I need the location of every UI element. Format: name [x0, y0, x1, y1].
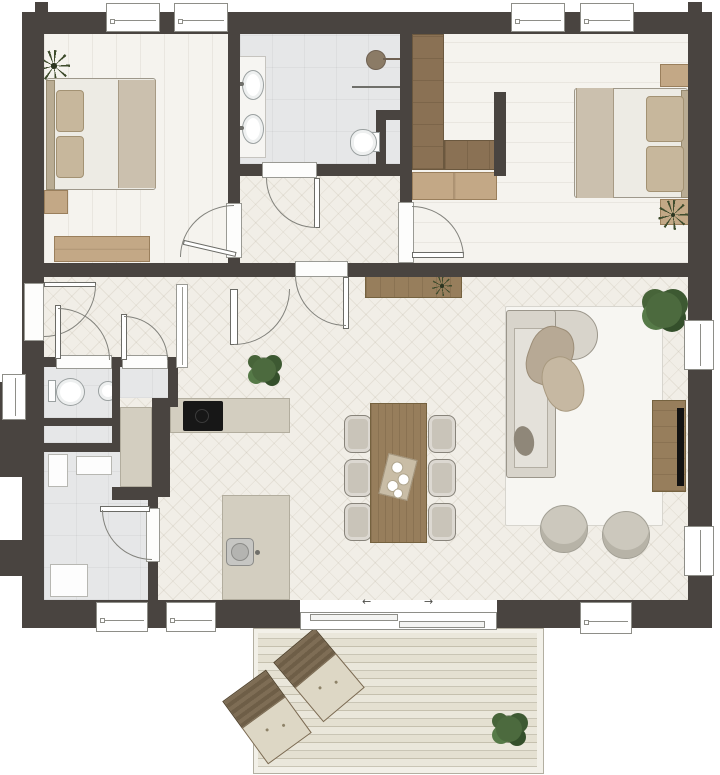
shower-head-icon	[366, 50, 386, 70]
wall-niche-bottom	[44, 443, 112, 452]
wc-toilet-bowl	[56, 378, 85, 406]
living-large-plant	[646, 292, 682, 328]
cooktop	[183, 401, 223, 431]
wall-wc-bottom	[44, 418, 112, 426]
wall-wc-closet-divider	[112, 367, 120, 452]
bedroom2-bench-shelf	[412, 172, 497, 200]
utility-cabinet	[50, 564, 88, 597]
bedroom1-dresser	[54, 236, 150, 262]
window	[174, 3, 228, 32]
dining-chair	[428, 415, 456, 453]
exterior-wall-bottom-left	[22, 600, 300, 628]
closet-floor	[120, 367, 168, 398]
slide-direction-left-icon: ←	[362, 596, 371, 607]
wall-stub	[35, 2, 48, 14]
wall-bathroom-bottom	[240, 164, 262, 176]
bedroom2-wardrobe-horizontal	[444, 140, 497, 170]
wall-bedroom1-bathroom	[228, 34, 240, 203]
bedroom2-nightstand	[660, 64, 690, 87]
bedroom2-pillow	[646, 96, 684, 142]
window	[166, 602, 216, 632]
window	[511, 3, 565, 32]
utility-washer	[48, 454, 68, 487]
bedroom2-wardrobe-vertical	[412, 34, 444, 170]
slide-direction-right-icon: →	[424, 596, 433, 607]
bathroom-sink	[242, 70, 264, 100]
bathroom-sink	[242, 114, 264, 144]
window	[580, 602, 632, 634]
dining-chair	[428, 503, 456, 541]
wall-walkin-stub	[494, 92, 506, 176]
window	[2, 374, 26, 420]
wall-bathroom-bedroom2	[400, 12, 412, 202]
bedroom2-plant-icon	[658, 200, 688, 230]
sliding-door-panel	[310, 614, 398, 621]
toilet-bowl	[350, 129, 377, 156]
wall-buttress	[0, 540, 33, 576]
wall-kitchen-utility	[152, 398, 170, 497]
island-sink-basin	[231, 543, 249, 561]
wall-stub	[688, 2, 702, 14]
window	[96, 602, 148, 632]
wall-bathroom-bottom	[317, 164, 400, 176]
bedroom2-pillow	[646, 146, 684, 192]
bathroom-door-frame	[262, 162, 317, 178]
wall-bedrooms-bottom	[22, 263, 295, 277]
dining-chair	[428, 459, 456, 497]
bedroom1-nightstand	[44, 190, 68, 214]
wall-utility-right	[148, 562, 158, 600]
bedroom2-duvet	[576, 88, 614, 198]
kitchen-floor-plant	[252, 358, 276, 382]
front-door-frame	[24, 283, 44, 341]
pouf	[540, 505, 588, 553]
sliding-door-panel	[399, 621, 485, 628]
dining-chair	[344, 503, 372, 541]
island-faucet-icon	[255, 550, 260, 555]
niche-floor	[44, 426, 112, 443]
utility-appliance	[76, 456, 112, 475]
floor-plan: ← →	[0, 0, 720, 775]
wc-toilet-tank	[48, 380, 56, 402]
sideboard-plant-icon	[432, 276, 452, 296]
window	[106, 3, 160, 32]
utility-counter	[120, 407, 152, 487]
tv-icon	[677, 408, 684, 486]
window	[580, 3, 634, 32]
wall-utility-corner	[112, 487, 158, 500]
window	[684, 526, 714, 576]
bedroom1-headboard	[46, 80, 55, 190]
wall-bedrooms-bottom	[348, 263, 688, 277]
window	[684, 320, 714, 370]
bedroom1-duvet	[118, 80, 156, 188]
pouf	[602, 511, 650, 559]
dining-chair	[344, 415, 372, 453]
deck-plant	[496, 716, 522, 742]
shower-screen	[352, 86, 404, 88]
hall-glass-partition	[176, 284, 188, 368]
dining-chair	[344, 459, 372, 497]
bedroom1-pillow	[56, 90, 84, 132]
corridor-floor	[240, 176, 400, 263]
bedroom1-pillow	[56, 136, 84, 178]
